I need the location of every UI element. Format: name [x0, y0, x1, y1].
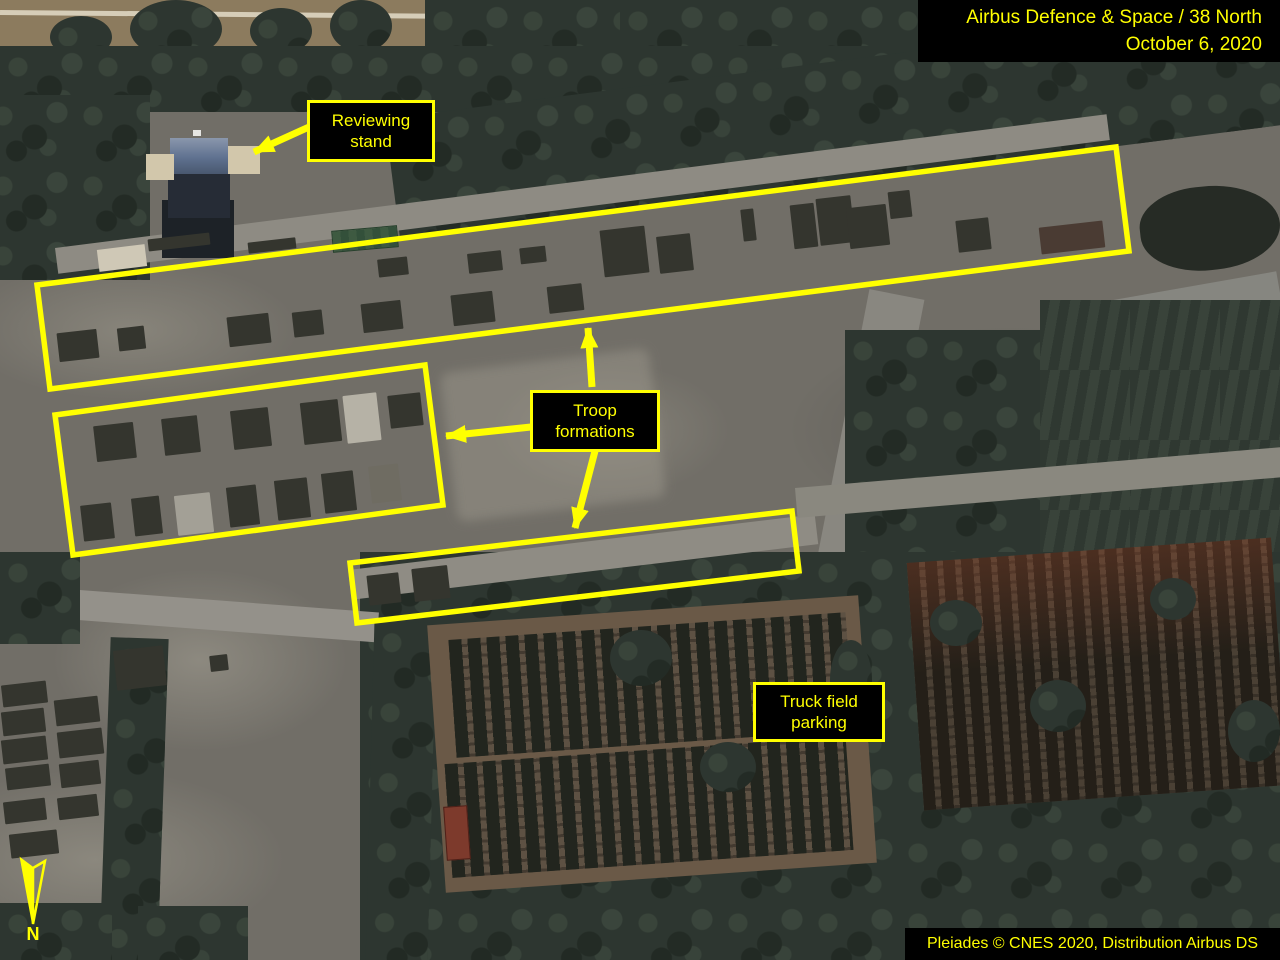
troop-formation-block	[846, 204, 890, 249]
troop-formation-block	[5, 764, 51, 791]
troop-formation-block	[955, 217, 991, 253]
troop-formation-block	[80, 502, 115, 541]
troop-formation-block	[292, 309, 325, 337]
troop-formation-block	[230, 407, 272, 450]
troop-formation-block	[599, 226, 649, 278]
troop-formation-block	[57, 728, 105, 759]
troop-formation-block	[113, 645, 167, 690]
troop-formation-block	[226, 484, 260, 527]
troop-formation-block	[54, 696, 101, 727]
troop-formation-block	[209, 654, 229, 672]
label-truck-parking: Truck field parking	[753, 682, 885, 742]
troop-formation-block	[3, 798, 47, 825]
troop-formation-block	[161, 415, 201, 456]
troop-formation-block	[300, 399, 343, 445]
troop-formation-block	[387, 392, 424, 429]
north-label: N	[19, 924, 47, 945]
troop-formation-block	[411, 565, 451, 602]
credit-panel: Pleiades © CNES 2020, Distribution Airbu…	[905, 928, 1280, 960]
troop-formation-block	[1, 736, 48, 765]
troop-formation-block	[93, 422, 137, 462]
date-line: October 6, 2020	[918, 31, 1262, 58]
troop-formation-block	[547, 283, 585, 314]
troop-formation-block	[790, 203, 819, 249]
troop-formation-block	[248, 237, 297, 253]
troop-formation-block	[148, 233, 211, 252]
troop-formation-block	[360, 300, 403, 333]
troop-formation-block	[57, 794, 99, 820]
troop-formation-block	[174, 492, 214, 536]
troop-formation-block	[1, 681, 48, 708]
troop-formation-block	[274, 477, 311, 520]
troop-formation-block	[519, 246, 547, 265]
troop-formation-block	[131, 496, 163, 537]
formations-layer	[0, 0, 1280, 960]
troop-formation-block	[9, 829, 59, 858]
troop-formation-block	[117, 326, 146, 352]
troop-formation-block	[377, 256, 409, 277]
troop-formation-block	[1039, 220, 1106, 254]
troop-formation-block	[321, 470, 357, 513]
troop-formation-block	[59, 760, 101, 788]
troop-formation-block	[1, 708, 46, 737]
troop-formation-block	[656, 233, 694, 274]
label-troop-formations: Troop formations	[530, 390, 660, 452]
troop-formation-block	[342, 392, 381, 444]
label-reviewing-stand-text: Reviewing stand	[316, 110, 426, 152]
label-troop-formations-text: Troop formations	[539, 400, 651, 442]
troop-formation-block	[366, 572, 401, 605]
credit-text: Pleiades © CNES 2020, Distribution Airbu…	[927, 935, 1258, 952]
label-reviewing-stand: Reviewing stand	[307, 100, 435, 162]
satellite-image: Reviewing stand Troop formations Truck f…	[0, 0, 1280, 960]
source-line: Airbus Defence & Space / 38 North	[918, 4, 1262, 31]
troop-formation-block	[368, 463, 402, 503]
troop-formation-block	[450, 291, 495, 327]
troop-formation-block	[56, 329, 99, 362]
troop-formation-block	[888, 190, 913, 219]
troop-formation-block	[467, 250, 503, 274]
troop-formation-block	[740, 208, 757, 241]
troop-formation-block	[226, 313, 271, 348]
label-truck-parking-text: Truck field parking	[762, 691, 876, 733]
source-attribution-panel: Airbus Defence & Space / 38 North Octobe…	[918, 0, 1280, 62]
